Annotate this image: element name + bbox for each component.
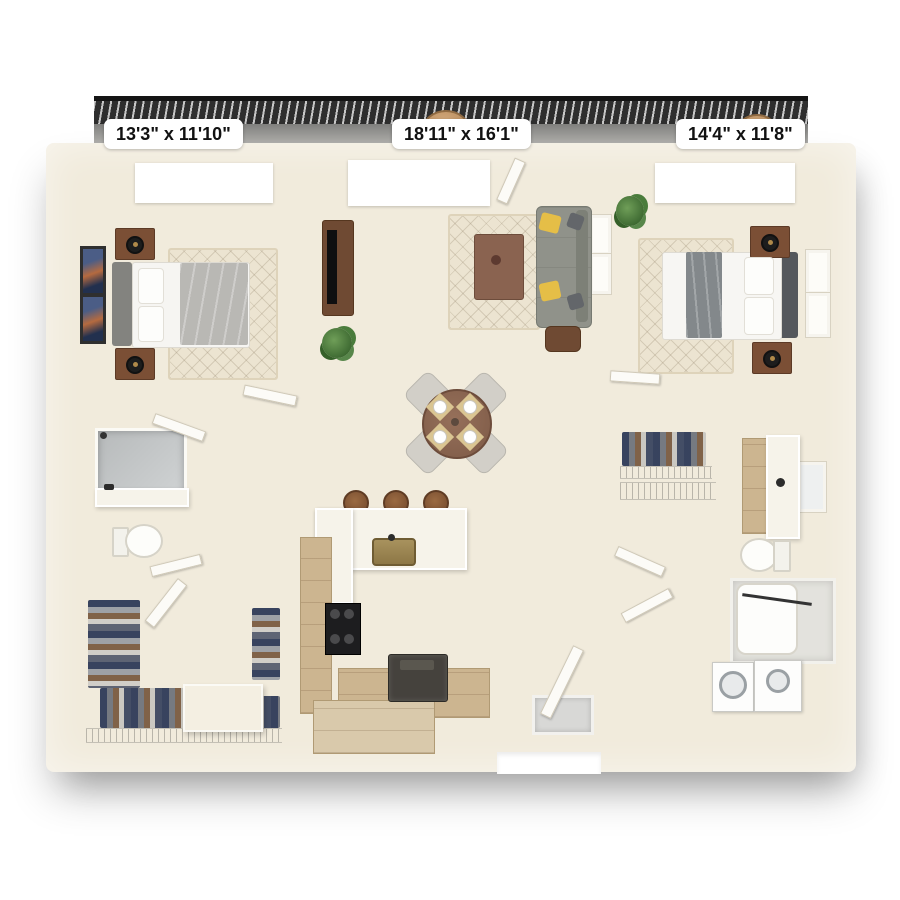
refrigerator-handle — [400, 660, 434, 670]
table-decor — [491, 255, 501, 265]
toilet-bowl — [125, 524, 163, 558]
bathroom-1-vanity-counter — [95, 488, 189, 507]
window-pane — [443, 165, 485, 201]
toilet-tank — [773, 540, 791, 572]
table-lamp — [126, 356, 144, 374]
wall-art-frame — [80, 246, 106, 296]
window-pane — [353, 165, 395, 201]
bed-2-throw-blanket — [686, 252, 722, 338]
table-centerpiece — [451, 418, 459, 426]
bathroom-2-vanity-counter — [766, 435, 800, 539]
bed-1-blanket — [180, 263, 248, 345]
closet-bench — [183, 684, 263, 732]
window-pane — [140, 168, 203, 198]
wall-art-frame — [806, 293, 830, 337]
hanging-clothes-rack — [88, 600, 140, 688]
sink-faucet — [388, 534, 395, 541]
dryer — [754, 660, 802, 712]
nightstand — [115, 228, 155, 260]
potted-plant — [322, 328, 352, 358]
stove-burner — [330, 609, 340, 619]
stove-burner — [330, 634, 340, 644]
washer — [712, 662, 754, 712]
table-lamp — [763, 350, 781, 368]
bed-2-pillow — [744, 297, 774, 335]
room-dimension-label-living: 18'11" x 16'1" — [392, 119, 531, 149]
dryer-door — [766, 669, 790, 693]
table-lamp — [126, 236, 144, 254]
floor-plan-canvas: 13'3" x 11'10" 18'11" x 16'1" 14'4" x 11… — [0, 0, 900, 900]
hanging-clothes-rack — [252, 608, 280, 680]
room-dimension-label-bedroom-2: 14'4" x 11'8" — [676, 119, 805, 149]
hanging-clothes-rack — [622, 432, 706, 466]
wall-art-frame — [806, 250, 830, 294]
bed-1-headboard — [112, 262, 132, 346]
table-lamp — [761, 234, 779, 252]
coffee-table — [474, 234, 524, 300]
washer-door — [719, 671, 747, 699]
entry-doormat — [532, 695, 594, 735]
stove-burner — [344, 634, 354, 644]
window-pane — [206, 168, 269, 198]
nightstand — [115, 348, 155, 380]
living-room-window — [348, 160, 490, 206]
bed-1-pillow — [138, 306, 164, 342]
stove-burner — [344, 609, 354, 619]
bathroom-mirror — [798, 462, 826, 512]
wall-art-frame — [590, 215, 611, 255]
wall-art-frame — [590, 254, 611, 294]
television — [327, 230, 337, 304]
nightstand — [752, 342, 792, 374]
bedroom-2-window — [655, 163, 795, 203]
bedroom-1-window — [135, 163, 273, 203]
window-pane — [660, 168, 724, 198]
plate — [433, 430, 447, 444]
plate — [463, 400, 477, 414]
plate — [433, 400, 447, 414]
kitchen-sink — [372, 538, 416, 566]
bed-1-pillow — [138, 268, 164, 304]
bottom-wall-notch — [497, 752, 601, 774]
bed-2-pillow — [744, 257, 774, 295]
wire-shelf — [620, 482, 716, 500]
room-dimension-label-bedroom-1: 13'3" x 11'10" — [104, 119, 243, 149]
side-table — [545, 326, 581, 352]
nightstand — [750, 226, 790, 258]
vanity-faucet — [776, 478, 785, 487]
potted-plant — [616, 196, 644, 226]
window-pane — [727, 168, 791, 198]
wire-shelf — [620, 466, 712, 479]
wall-art-frame — [80, 294, 106, 344]
window-pane — [398, 165, 440, 201]
plate — [463, 430, 477, 444]
vanity-faucet — [104, 484, 114, 490]
kitchen-lower-cabinets-step — [313, 700, 435, 754]
shower-head — [100, 432, 107, 439]
